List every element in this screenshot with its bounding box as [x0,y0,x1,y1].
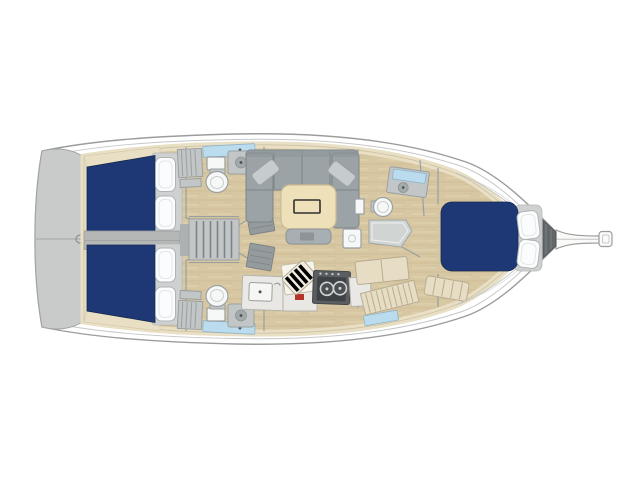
swim-platform [35,149,84,329]
berth-mattress-starboard [87,245,155,323]
shelf [355,199,364,214]
salon-table [281,185,336,229]
stove [312,270,350,304]
berth-mattress-port [87,156,155,234]
companionway [180,217,239,263]
pillow [516,239,540,269]
pillow [516,210,540,240]
bowsprit-tip-fitting [599,232,612,247]
aft-cabin-port [87,153,182,234]
yacht-floorplan-image [0,0,640,479]
hatch [207,308,225,321]
floorplan-svg [0,0,640,479]
berth-mattress-forward [441,202,518,271]
aft-cabinet [355,256,409,284]
aft-locker-port [177,148,203,187]
cool-box [343,229,361,248]
anchor-locker [543,220,556,258]
salon-bench [286,229,331,244]
entry-sill [180,224,189,256]
hatch [207,157,225,170]
vanity-sink [386,166,429,197]
galley-sink-unit [241,275,286,311]
shower-mat [246,243,275,271]
aft-locker-starboard [177,290,203,329]
aft-cabin-starboard [87,244,182,325]
